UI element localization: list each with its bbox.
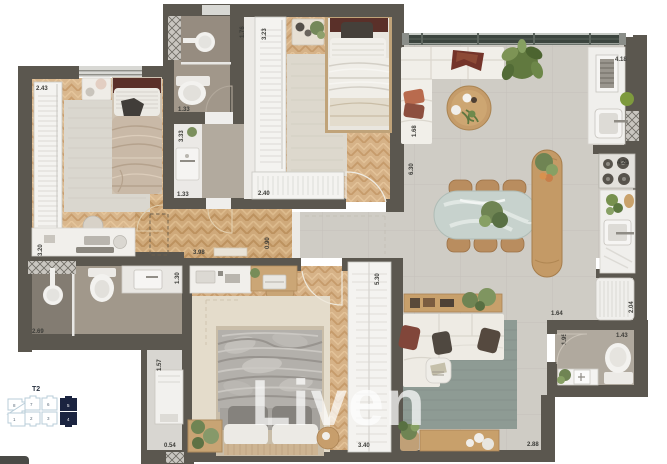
svg-text:4.21: 4.21 <box>617 160 629 166</box>
svg-text:2.40: 2.40 <box>258 191 270 197</box>
svg-text:3.20: 3.20 <box>38 244 44 256</box>
svg-text:0.90: 0.90 <box>265 237 271 249</box>
svg-text:1.33: 1.33 <box>177 192 189 198</box>
svg-text:1.30: 1.30 <box>175 272 181 284</box>
svg-text:3.40: 3.40 <box>358 443 370 449</box>
svg-text:1.57: 1.57 <box>157 359 163 371</box>
svg-text:2.88: 2.88 <box>527 442 539 448</box>
svg-text:4.18: 4.18 <box>615 57 627 63</box>
svg-text:3.98: 3.98 <box>193 250 205 256</box>
svg-text:T2: T2 <box>32 386 40 393</box>
svg-text:1.64: 1.64 <box>551 311 563 317</box>
svg-text:3.23: 3.23 <box>262 28 268 40</box>
svg-text:0.54: 0.54 <box>164 443 176 449</box>
svg-text:5.30: 5.30 <box>375 273 381 285</box>
svg-text:2.69: 2.69 <box>32 329 44 335</box>
svg-text:3.33: 3.33 <box>179 130 185 142</box>
svg-text:Liven: Liven <box>251 366 426 439</box>
svg-text:2.43: 2.43 <box>36 86 48 92</box>
svg-text:2.04: 2.04 <box>629 301 635 313</box>
svg-text:1.33: 1.33 <box>178 107 190 113</box>
svg-text:1.43: 1.43 <box>616 333 628 339</box>
svg-text:6.30: 6.30 <box>409 163 415 175</box>
svg-text:1.68: 1.68 <box>412 125 418 137</box>
